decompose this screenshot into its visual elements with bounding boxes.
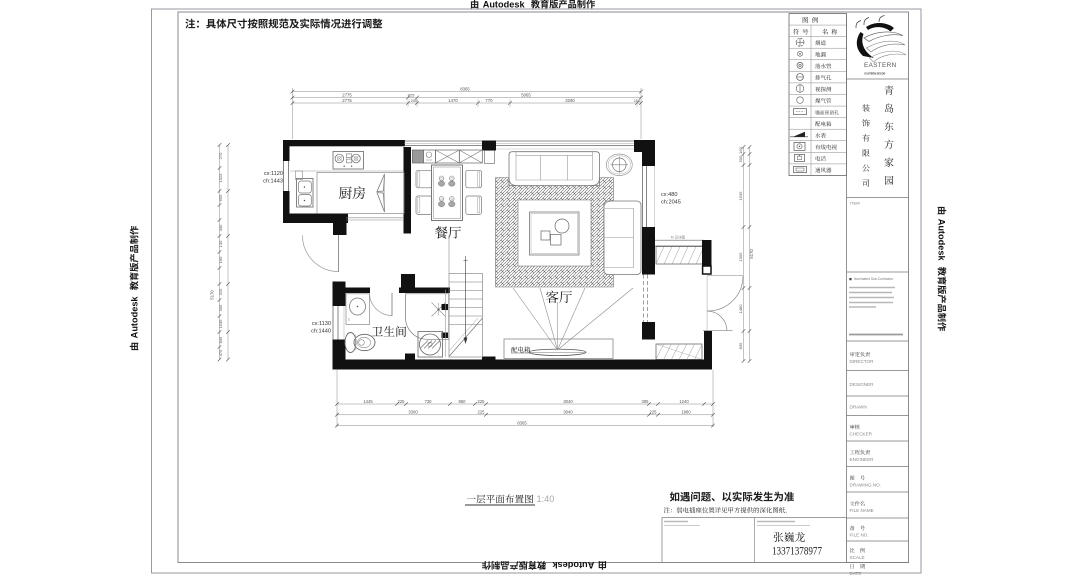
svg-text:M 见详图: M 见详图: [671, 235, 686, 240]
svg-text:475: 475: [218, 349, 223, 356]
svg-text:1480: 1480: [738, 304, 743, 314]
svg-text:ENGINEER: ENGINEER: [850, 457, 875, 462]
svg-text:DIRECTOR: DIRECTOR: [850, 359, 875, 364]
svg-text:DRAWING NO.: DRAWING NO.: [850, 482, 881, 487]
svg-text:1545: 1545: [218, 319, 223, 329]
svg-text:8365: 8365: [460, 86, 470, 91]
svg-text:EASTERN DECOR: EASTERN DECOR: [865, 73, 886, 76]
svg-text:1470: 1470: [448, 98, 458, 103]
svg-text:1:40: 1:40: [537, 494, 555, 504]
svg-text:160: 160: [738, 146, 743, 153]
svg-text:225: 225: [478, 399, 486, 404]
svg-text:ITEM: ITEM: [850, 201, 860, 206]
svg-text:DRAWN: DRAWN: [850, 404, 867, 409]
svg-text:FILE NO.: FILE NO.: [850, 533, 869, 538]
svg-text:SCALE: SCALE: [850, 555, 865, 560]
svg-text:500: 500: [738, 155, 743, 162]
svg-text:FILE NAME: FILE NAME: [850, 508, 874, 513]
svg-text:770: 770: [485, 98, 493, 103]
svg-text:ch:1443: ch:1443: [263, 179, 283, 185]
svg-text:110: 110: [634, 98, 641, 103]
svg-text:CHECKER: CHECKER: [850, 431, 873, 436]
svg-text:1980: 1980: [681, 410, 691, 415]
svg-text:Nominated Sub-Contractor: Nominated Sub-Contractor: [854, 277, 894, 281]
svg-text:ch:1440: ch:1440: [311, 329, 331, 335]
svg-text:ch:2045: ch:2045: [661, 200, 681, 206]
svg-text:305: 305: [642, 399, 650, 404]
svg-text:8365: 8365: [517, 420, 527, 425]
svg-text:270: 270: [218, 152, 223, 159]
svg-text:1025: 1025: [218, 173, 223, 183]
svg-text:315: 315: [218, 288, 223, 295]
svg-text:225: 225: [650, 410, 658, 415]
svg-text:2775: 2775: [342, 92, 352, 97]
svg-text:190: 190: [218, 256, 223, 263]
svg-text:835: 835: [738, 342, 743, 349]
svg-text:845: 845: [218, 336, 223, 343]
svg-text:2775: 2775: [342, 98, 352, 103]
svg-text:◼: ◼: [849, 277, 852, 281]
svg-text:825: 825: [408, 92, 415, 97]
svg-text:cx:480: cx:480: [661, 192, 677, 198]
svg-text:730: 730: [425, 399, 433, 404]
svg-text:cx:1120: cx:1120: [264, 171, 283, 177]
svg-text:1305: 1305: [738, 252, 743, 262]
svg-text:Autodesk: Autodesk: [483, 0, 526, 10]
svg-text:440: 440: [218, 224, 223, 231]
svg-text:1535: 1535: [738, 191, 743, 201]
svg-text:850: 850: [459, 399, 467, 404]
svg-text:Autodesk: Autodesk: [130, 296, 140, 339]
svg-text:EASTERN: EASTERN: [864, 62, 897, 69]
svg-text:DESIGNER: DESIGNER: [850, 382, 875, 387]
svg-text:3290: 3290: [565, 98, 575, 103]
svg-text:5065: 5065: [521, 92, 531, 97]
svg-text:3040: 3040: [563, 399, 573, 404]
svg-text:1240: 1240: [679, 399, 689, 404]
svg-text:Autodesk: Autodesk: [937, 219, 947, 262]
svg-text:200: 200: [411, 98, 418, 103]
svg-text:1445: 1445: [363, 399, 373, 404]
svg-text:13371378977: 13371378977: [772, 546, 822, 558]
svg-text:225: 225: [478, 410, 486, 415]
svg-text:305: 305: [218, 304, 223, 311]
svg-text:Autodesk: Autodesk: [552, 560, 595, 570]
svg-text:cx:1130: cx:1130: [312, 321, 331, 327]
svg-text:5170: 5170: [749, 249, 754, 259]
svg-text:DATE: DATE: [850, 571, 862, 576]
svg-text:655: 655: [218, 194, 223, 201]
svg-text:3040: 3040: [563, 410, 573, 415]
svg-text:3300: 3300: [408, 410, 418, 415]
svg-text:130: 130: [218, 240, 223, 247]
svg-text:225: 225: [398, 399, 406, 404]
svg-text:5170: 5170: [210, 290, 215, 300]
